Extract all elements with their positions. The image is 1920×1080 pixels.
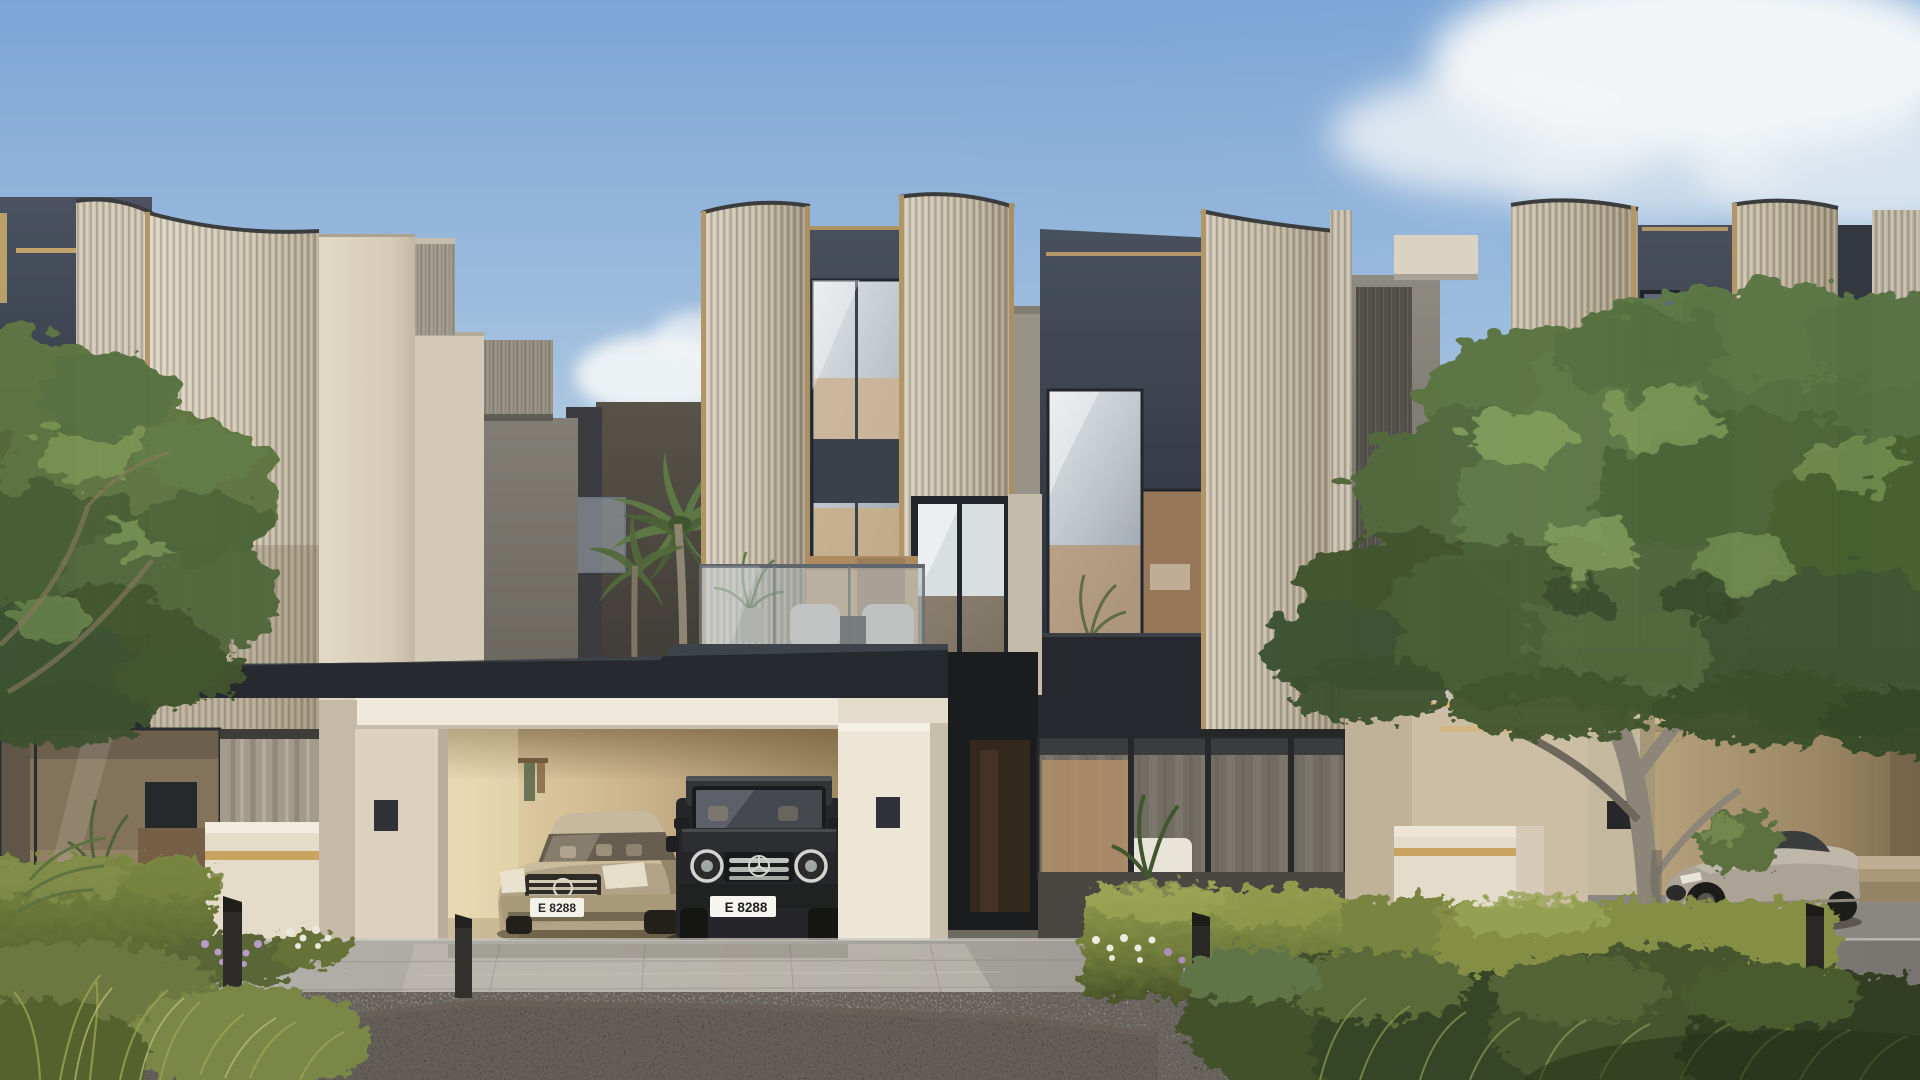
svg-text:E 8288: E 8288: [725, 900, 768, 915]
svg-text:E 8288: E 8288: [538, 901, 576, 915]
